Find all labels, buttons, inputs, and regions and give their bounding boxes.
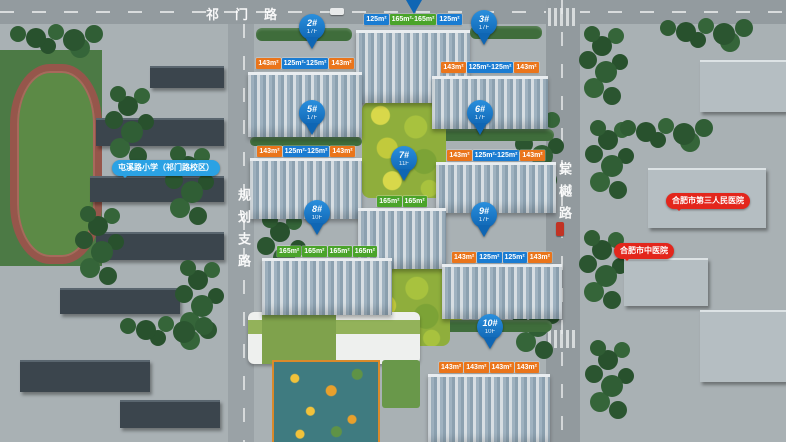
area-tag: 143m²	[439, 362, 463, 373]
kindergarten-playground	[272, 360, 380, 442]
area-tag: 143m²	[441, 62, 465, 73]
pin-tail	[310, 223, 324, 235]
campus-building	[150, 66, 224, 88]
area-tags-row: 143m² 125m²·125m² 143m²	[250, 146, 362, 157]
area-tag: 143m²	[257, 146, 281, 157]
pin-tail	[305, 37, 319, 49]
hedge	[250, 137, 362, 146]
area-tag: 143m²	[464, 362, 488, 373]
building-pin-8[interactable]: 8#10F	[304, 200, 330, 235]
area-tag: 143m²	[256, 58, 280, 69]
right-road-name: 棠樾路	[555, 162, 574, 228]
hospital-building	[700, 60, 786, 112]
pin-number: 7#	[399, 151, 409, 160]
building-pin-6[interactable]: 6#17F	[467, 100, 493, 135]
area-tag: 165m²	[302, 246, 326, 257]
left-road-name: 规划支路	[234, 188, 253, 276]
area-tags-row: 143m² 125m² 125m² 143m²	[442, 252, 562, 263]
pin-tail	[483, 337, 497, 349]
area-tag: 125m²·125m²	[473, 150, 520, 161]
pin-tail	[305, 123, 319, 135]
area-tag: 165m²	[403, 196, 427, 207]
area-tags-row: 143m² 125m²·125m² 143m²	[436, 150, 556, 161]
running-track	[10, 64, 102, 264]
building-pin-1-tip[interactable]	[406, 0, 422, 14]
area-tags-row: 143m² 125m²·125m² 143m²	[432, 62, 548, 73]
area-tag: 125m²·125m²	[282, 58, 329, 69]
area-tag: 165m²	[328, 246, 352, 257]
building-pin-3[interactable]: 3#17F	[471, 10, 497, 45]
trees	[590, 340, 606, 356]
trees	[590, 120, 606, 136]
trees	[80, 206, 96, 222]
pin-floors: 17F	[475, 115, 485, 121]
pin-floors: 11F	[399, 161, 409, 167]
lane-marking	[0, 11, 786, 13]
pin-floors: 17F	[479, 25, 489, 31]
kindergarten-yard	[382, 360, 420, 408]
building-pin-9[interactable]: 9#17F	[471, 202, 497, 237]
area-tag: 165m²·165m²	[390, 14, 437, 25]
crosswalk	[548, 330, 578, 348]
area-tags-row: 125m² 165m²·165m² 125m²	[356, 14, 470, 25]
trees	[584, 230, 600, 246]
trees	[620, 120, 636, 136]
area-tag: 143m²	[447, 150, 471, 161]
area-tag: 143m²	[514, 62, 538, 73]
car	[330, 8, 344, 15]
area-tag: 125m²	[503, 252, 527, 263]
residential-building-10	[428, 374, 550, 442]
pin-tail	[477, 33, 491, 45]
campus-building	[96, 232, 224, 260]
trees	[10, 26, 26, 42]
area-tag: 125m²	[437, 14, 461, 25]
area-tags-row: 143m² 143m² 143m² 143m²	[428, 362, 550, 373]
campus-building	[90, 176, 224, 202]
area-tags-row: 165m² 165m² 165m² 165m²	[262, 246, 392, 257]
pin-number: 5#	[307, 105, 317, 114]
building-pin-7[interactable]: 7#11F	[391, 146, 417, 181]
area-tag: 143m²	[520, 150, 544, 161]
hedge	[436, 129, 554, 141]
residential-building-8	[262, 258, 392, 315]
trees	[120, 318, 136, 334]
area-tag: 143m²	[515, 362, 539, 373]
campus-building	[96, 118, 224, 146]
pin-floors: 17F	[479, 217, 489, 223]
area-tags-row: 143m² 125m²·125m² 143m²	[248, 58, 362, 69]
campus-building	[20, 360, 150, 392]
area-tag: 125m²	[364, 14, 388, 25]
pin-tail	[473, 123, 487, 135]
campus-building	[120, 400, 220, 428]
pin-floors: 17F	[307, 115, 317, 121]
trees	[660, 20, 676, 36]
pin-number: 6#	[475, 105, 485, 114]
trees	[180, 260, 196, 276]
school-label-bubble[interactable]: 屯溪路小学（祁门路校区）	[112, 160, 220, 176]
area-tag: 143m²	[330, 146, 354, 157]
crosswalk	[548, 8, 578, 26]
hospital-tcm-label-bubble[interactable]: 合肥市中医院	[614, 243, 674, 259]
area-tag: 125m²·125m²	[467, 62, 514, 73]
area-tags-row: 165m² 165m²	[358, 196, 446, 207]
pin-floors: 17F	[307, 29, 317, 35]
area-tag: 143m²	[490, 362, 514, 373]
campus-building	[60, 288, 180, 314]
building-pin-10[interactable]: 10#10F	[477, 314, 503, 349]
site-plan-aerial-view: 125m² 165m²·165m² 125m² 143m² 125m²·125m…	[0, 0, 786, 442]
pin-number: 2#	[307, 19, 317, 28]
pin-tail	[397, 169, 411, 181]
pin-tail	[477, 225, 491, 237]
pin-floors: 10F	[312, 215, 322, 221]
building-pin-2[interactable]: 2#17F	[299, 14, 325, 49]
hospital-third-label-bubble[interactable]: 合肥市第三人民医院	[666, 193, 750, 209]
pin-number: 10#	[482, 319, 497, 328]
pin-number: 3#	[479, 15, 489, 24]
pin-number: 8#	[312, 205, 322, 214]
kindergarten-building	[248, 312, 420, 364]
trees	[584, 26, 600, 42]
top-road-name: 祁门路	[206, 4, 293, 23]
area-tag: 165m²	[277, 246, 301, 257]
area-tag: 125m²	[477, 252, 501, 263]
pin-number: 9#	[479, 207, 489, 216]
area-tag: 165m²	[377, 196, 401, 207]
hospital-building	[700, 310, 786, 382]
area-tag: 143m²	[528, 252, 552, 263]
area-tag: 143m²	[452, 252, 476, 263]
building-pin-5[interactable]: 5#17F	[299, 100, 325, 135]
area-tag: 165m²	[353, 246, 377, 257]
hospital-building	[624, 258, 708, 306]
residential-building-9	[442, 264, 562, 319]
pin-floors: 10F	[485, 329, 495, 335]
trees	[110, 86, 126, 102]
area-tag: 125m²·125m²	[283, 146, 330, 157]
area-tag: 143m²	[329, 58, 353, 69]
